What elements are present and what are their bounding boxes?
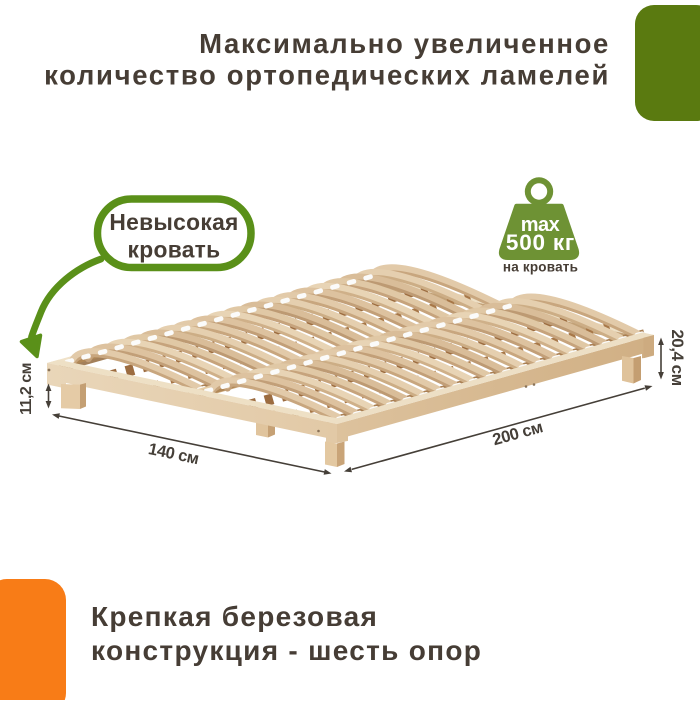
svg-text:11,2 см: 11,2 см (18, 363, 35, 415)
svg-text:конструкция - шесть опор: конструкция - шесть опор (91, 635, 482, 666)
svg-text:Максимально увеличенное: Максимально увеличенное (199, 28, 610, 59)
svg-text:количество ортопедических ламе: количество ортопедических ламелей (44, 60, 610, 91)
svg-text:500 кг: 500 кг (506, 230, 575, 255)
svg-text:Невысокая: Невысокая (109, 209, 238, 235)
svg-text:на кровать: на кровать (503, 260, 578, 275)
svg-text:Крепкая березовая: Крепкая березовая (91, 601, 378, 632)
svg-text:кровать: кровать (128, 237, 221, 263)
svg-text:20,4 см: 20,4 см (668, 329, 687, 385)
